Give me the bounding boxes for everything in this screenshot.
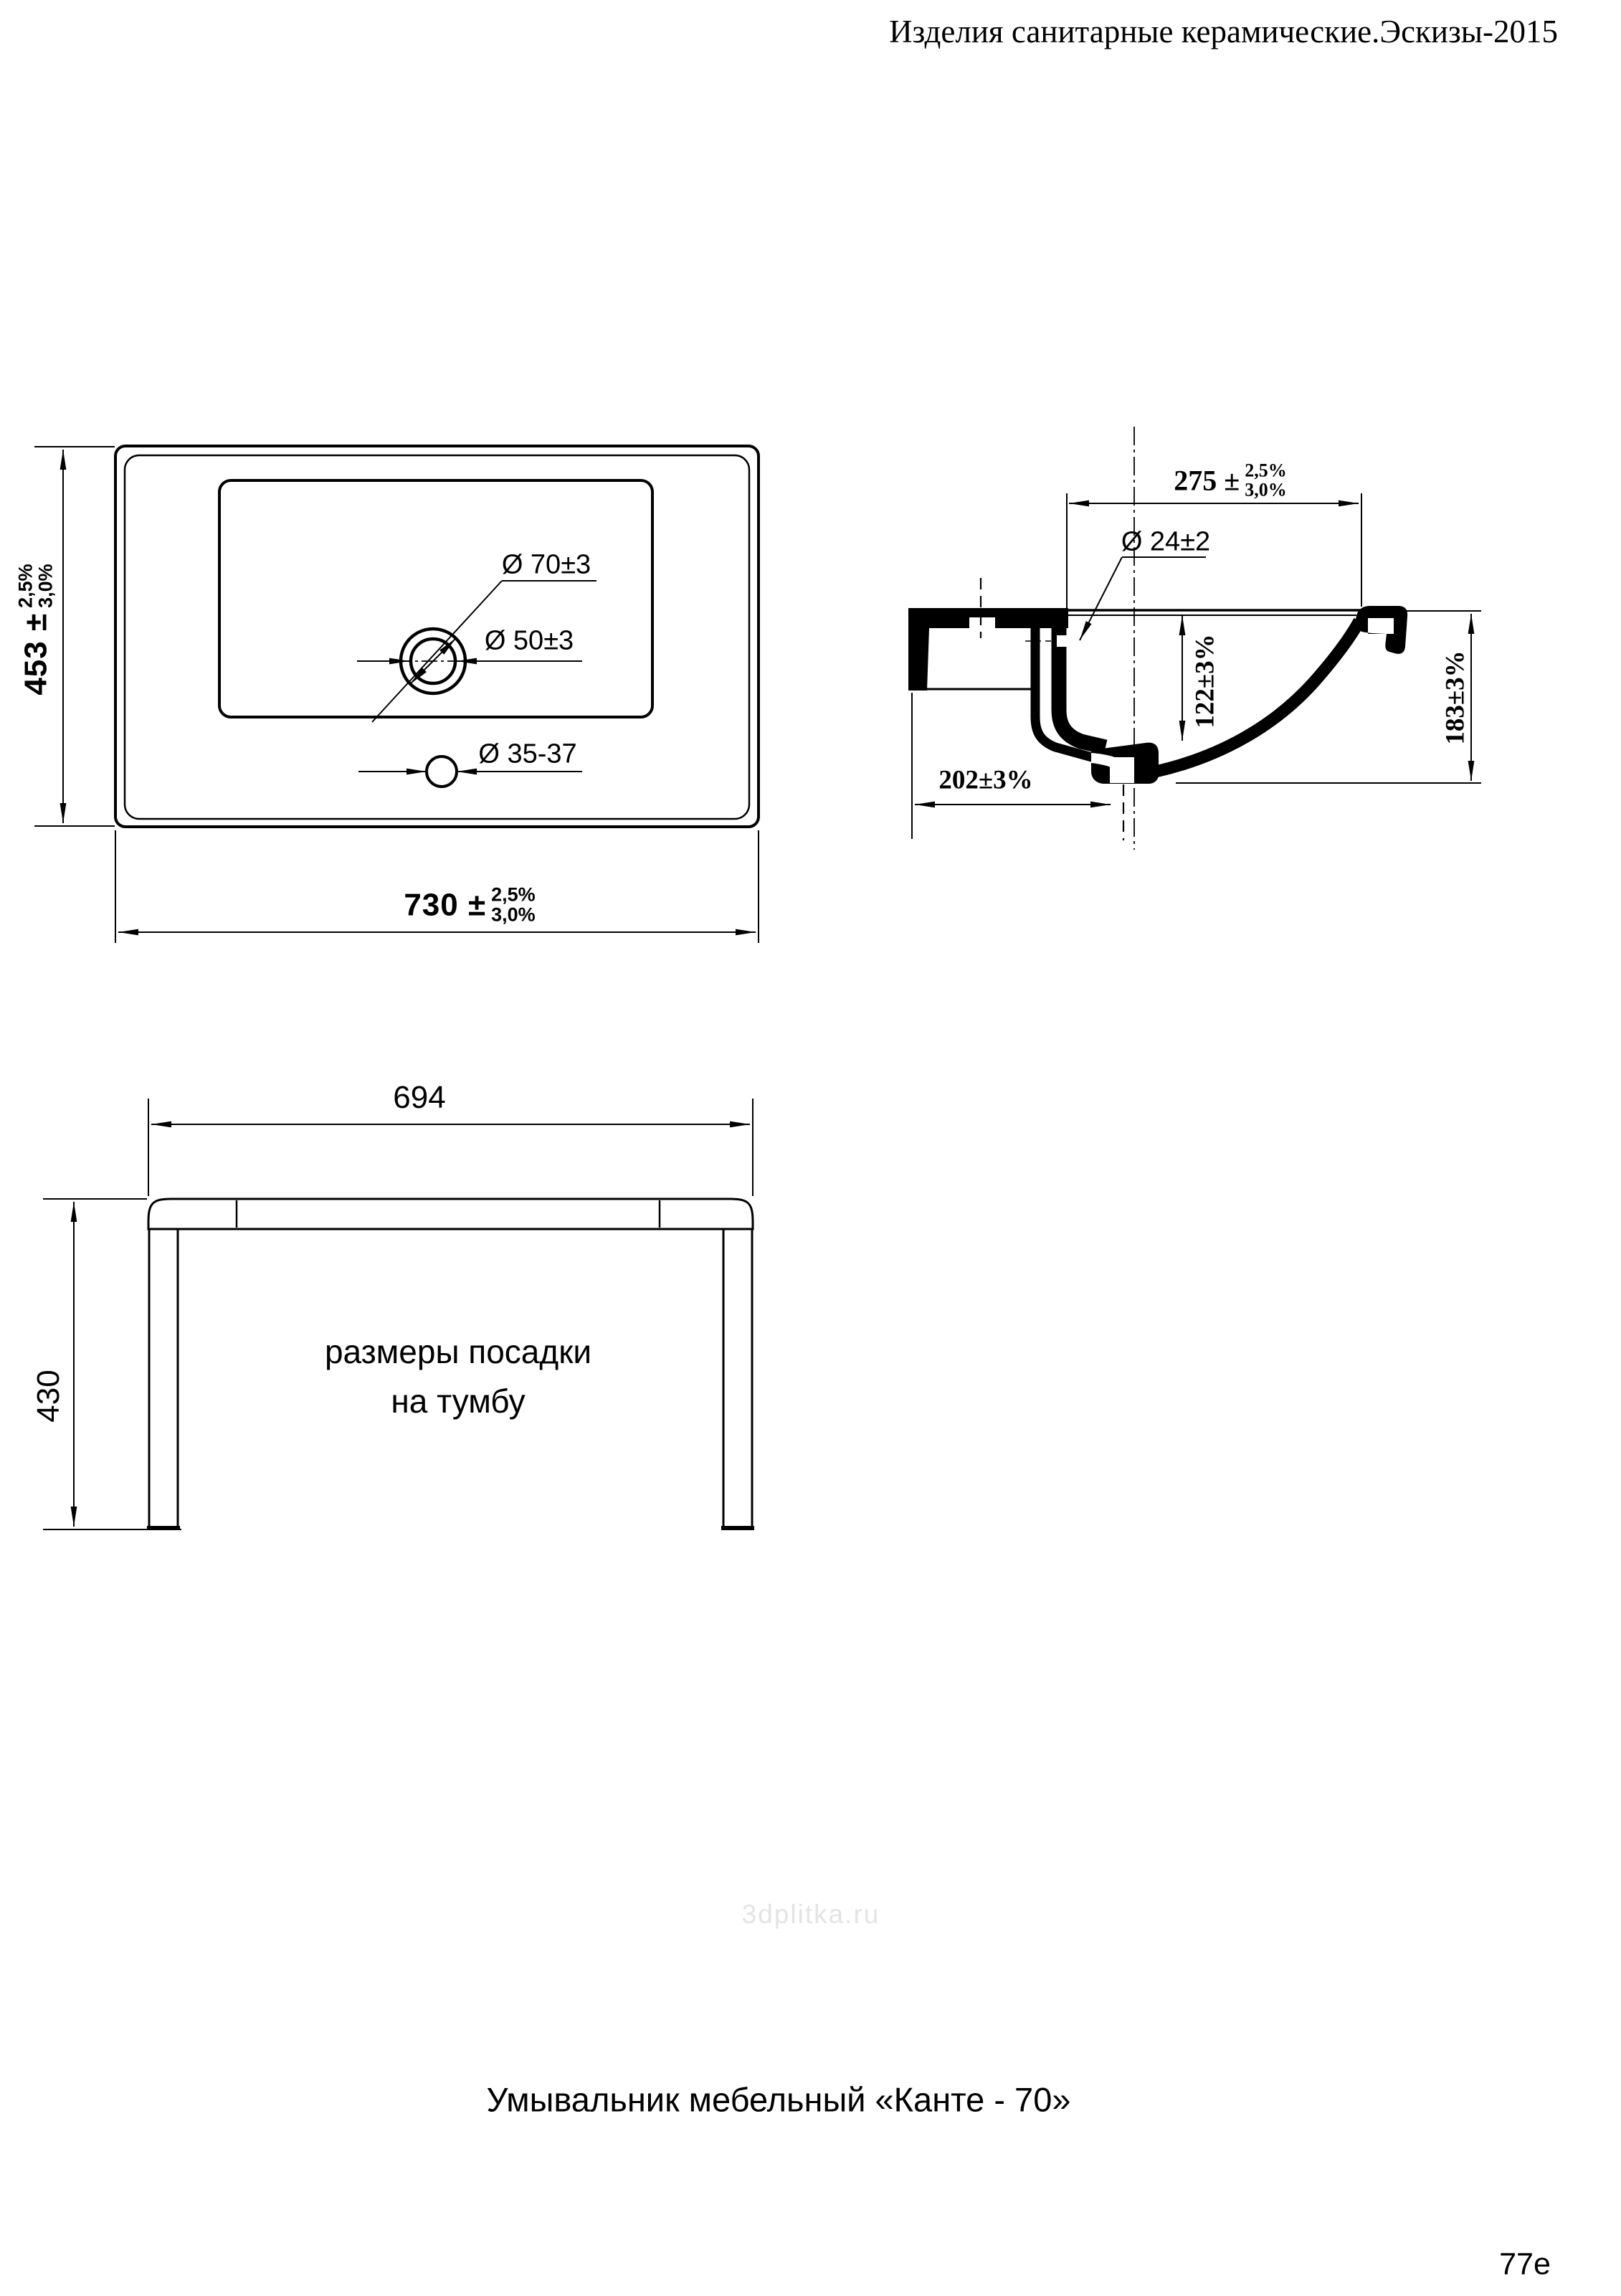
tolerance-lower: 3,0% (36, 564, 56, 608)
mount-height-dimension-label: 430 (31, 1370, 67, 1422)
tolerance-upper: 2,5% (16, 564, 36, 608)
dimension-value: 730 ± (404, 887, 486, 923)
mounting-note-line2: на тумбу (391, 1382, 525, 1420)
overflow-channel-hole (1057, 635, 1068, 647)
mount-left-leg (149, 1229, 178, 1527)
plan-view-drawing (34, 446, 759, 943)
faucet-hole-outer-diameter-label: Ø 70±3 (502, 550, 591, 581)
watermark: 3dplitka.ru (742, 1899, 880, 1930)
sink-outer-outline (115, 446, 759, 827)
drain-offset-dimension-label: 202±3% (938, 765, 1032, 796)
channel-hole-diameter-label: Ø 24±2 (1121, 527, 1210, 558)
mounting-view-drawing (43, 1099, 754, 1529)
drawing-sheet: Изделия санитарные керамические.Эскизы-2… (0, 0, 1621, 2296)
section-back-ledge (908, 608, 1068, 628)
section-back-wall (908, 608, 930, 691)
mount-right-leg (723, 1229, 752, 1527)
sheet-title: Изделия санитарные керамические.Эскизы-2… (889, 13, 1558, 50)
tolerance-upper: 2,5% (1245, 461, 1287, 480)
mount-top-profile (148, 1199, 753, 1229)
technical-drawing-canvas (0, 0, 1621, 2296)
mounting-note-line1: размеры посадки (325, 1333, 591, 1370)
plan-height-dimension-label: 453 ± 2,5% 3,0% (16, 564, 55, 695)
dimension-value: 275 ± (1174, 464, 1240, 498)
mounting-note: размеры посадки на тумбу (325, 1327, 591, 1426)
page-number: 77e (1499, 2247, 1551, 2282)
overflow-hole-circle (427, 756, 457, 787)
overall-height-dimension-label: 183±3% (1440, 650, 1471, 744)
section-front-dimension-label: 275 ± 2,5% 3,0% (1174, 461, 1286, 499)
front-rim-hook (1356, 606, 1407, 654)
product-caption: Умывальник мебельный «Канте - 70» (487, 2080, 1071, 2120)
basin-depth-dimension-label: 122±3% (1190, 634, 1221, 728)
tolerance-stack: 2,5% 3,0% (491, 885, 536, 924)
overflow-hole-diameter-label: Ø 35-37 (478, 739, 576, 770)
bowl-wall-curve (1156, 621, 1359, 772)
faucet-hole-inner-diameter-label: Ø 50±3 (485, 626, 574, 657)
dimension-value: 453 ± (18, 613, 54, 696)
tolerance-stack: 2,5% 3,0% (1245, 461, 1287, 499)
tolerance-stack: 2,5% 3,0% (16, 564, 55, 608)
tolerance-lower: 3,0% (1245, 480, 1287, 500)
tolerance-upper: 2,5% (491, 885, 536, 905)
tolerance-lower: 3,0% (491, 905, 536, 925)
plan-width-dimension-label: 730 ± 2,5% 3,0% (404, 885, 535, 924)
mount-width-dimension-label: 694 (393, 1080, 445, 1116)
